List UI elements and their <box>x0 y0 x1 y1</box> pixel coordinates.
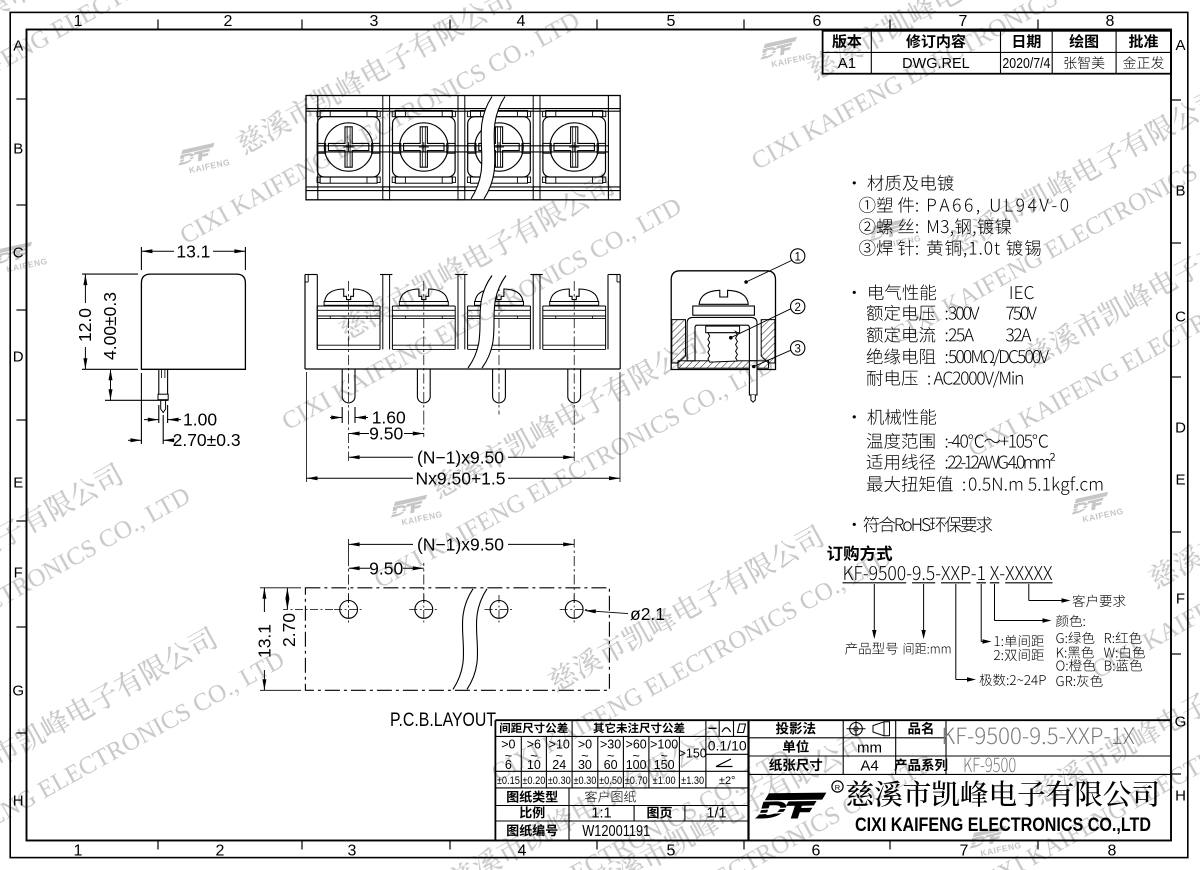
svg-text:E: E <box>13 475 23 492</box>
svg-text:A4: A4 <box>860 758 878 775</box>
svg-text:P.C.B.LAYOUT: P.C.B.LAYOUT <box>390 709 496 731</box>
svg-text:2: 2 <box>216 843 225 860</box>
svg-text:60: 60 <box>604 758 618 772</box>
svg-text:30: 30 <box>578 758 592 772</box>
svg-text:7: 7 <box>960 843 969 860</box>
svg-text:±0.30: ±0.30 <box>548 775 571 787</box>
svg-text:24: 24 <box>552 758 566 772</box>
svg-text:3: 3 <box>348 843 357 860</box>
svg-text:2: 2 <box>224 13 233 30</box>
svg-text:4: 4 <box>517 13 526 30</box>
svg-text:±0.30: ±0.30 <box>573 775 596 787</box>
svg-text:E: E <box>1175 472 1185 489</box>
svg-text:3: 3 <box>370 13 379 30</box>
svg-text:5: 5 <box>667 13 676 30</box>
svg-text:A: A <box>1175 37 1185 54</box>
svg-text:F: F <box>1176 591 1185 608</box>
svg-text:G: G <box>12 683 24 700</box>
svg-text:7: 7 <box>959 13 968 30</box>
svg-text:6: 6 <box>812 843 821 860</box>
svg-text:4.00±0.3: 4.00±0.3 <box>100 292 120 360</box>
svg-text:±0.20: ±0.20 <box>522 775 545 787</box>
svg-text:D: D <box>1175 420 1186 437</box>
svg-text:±1.30: ±1.30 <box>681 775 704 787</box>
svg-text:2.70±0.3: 2.70±0.3 <box>173 430 241 450</box>
svg-text:1.00: 1.00 <box>183 410 217 430</box>
svg-text:8: 8 <box>1108 843 1117 860</box>
svg-text:1: 1 <box>74 843 83 860</box>
svg-text:6: 6 <box>813 13 822 30</box>
svg-text:2020/7/4: 2020/7/4 <box>1002 56 1050 72</box>
svg-text:12.0: 12.0 <box>75 308 95 342</box>
svg-text:1: 1 <box>794 252 800 264</box>
svg-text:2: 2 <box>794 302 800 314</box>
svg-text:D: D <box>13 349 24 366</box>
svg-text:2.70: 2.70 <box>279 613 299 647</box>
svg-text:8: 8 <box>1106 13 1115 30</box>
svg-text:B: B <box>13 141 23 158</box>
svg-text:R: R <box>835 783 841 792</box>
svg-text:3: 3 <box>794 344 800 356</box>
svg-text:9.50: 9.50 <box>369 424 403 444</box>
